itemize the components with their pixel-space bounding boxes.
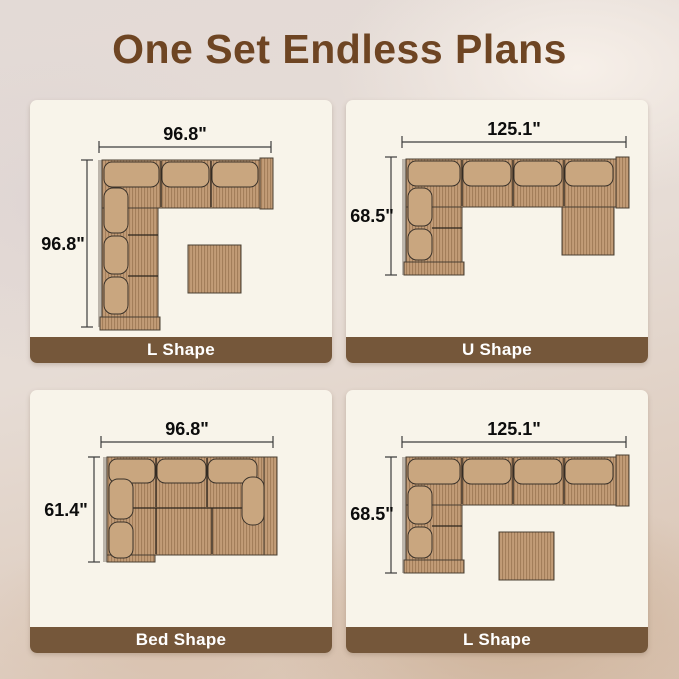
panel-u-shape: 125.1" 68.5": [346, 100, 648, 363]
height-dimension-label: 61.4": [44, 500, 88, 520]
height-dimension: 68.5": [350, 457, 397, 573]
sofa-shadow: [402, 159, 406, 275]
armrest-right: [264, 457, 277, 555]
height-dimension-label: 68.5": [350, 206, 394, 226]
armrest-right: [616, 157, 629, 208]
armrest-bottom: [404, 560, 464, 573]
height-dimension: 61.4": [44, 457, 100, 562]
sofa-top-view: [402, 455, 629, 580]
l-shape-top-diagram: 96.8" 96.8": [30, 100, 332, 337]
panel-label-u-shape: U Shape: [346, 337, 648, 363]
width-dimension-label: 125.1": [487, 419, 541, 439]
width-dimension-label: 96.8": [165, 419, 209, 439]
width-dimension: 96.8": [99, 124, 271, 153]
panel-l-shape-top: 96.8" 96.8": [30, 100, 332, 363]
panel-l-shape-bottom: 125.1" 68.5": [346, 390, 648, 653]
sofa-top-view: [402, 157, 629, 275]
sofa-top-view: [103, 457, 277, 562]
panel-bed-shape: 96.8" 61.4": [30, 390, 332, 653]
plans-grid: 96.8" 96.8": [30, 100, 648, 653]
height-dimension: 68.5": [350, 157, 397, 275]
width-dimension: 125.1": [402, 419, 626, 448]
page-title: One Set Endless Plans: [0, 0, 679, 73]
width-dimension: 125.1": [402, 119, 626, 148]
panel-label-bed-shape: Bed Shape: [30, 627, 332, 653]
sofa-shadow: [103, 457, 107, 562]
width-dimension: 96.8": [101, 419, 273, 448]
panel-label-l-shape-bottom: L Shape: [346, 627, 648, 653]
sofa-shadow: [98, 160, 102, 327]
ottoman: [188, 245, 241, 293]
armrest-right: [260, 158, 273, 209]
height-dimension-label: 68.5": [350, 504, 394, 524]
page-background: { "title": "One Set Endless Plans", "col…: [0, 0, 679, 679]
bed-shape-diagram: 96.8" 61.4": [30, 390, 332, 627]
width-dimension-label: 96.8": [163, 124, 207, 144]
height-dimension: 96.8": [41, 160, 93, 327]
armrest-bottom: [404, 262, 464, 275]
panel-label-l-shape-top: L Shape: [30, 337, 332, 363]
armrest-bottom: [100, 317, 160, 330]
u-shape-diagram: 125.1" 68.5": [346, 100, 648, 337]
width-dimension-label: 125.1": [487, 119, 541, 139]
sofa-top-view: [98, 158, 273, 330]
ottoman: [499, 532, 554, 580]
height-dimension-label: 96.8": [41, 234, 85, 254]
chaise-right: [562, 207, 614, 255]
sofa-shadow: [402, 457, 406, 573]
armrest-right: [616, 455, 629, 506]
l-shape-bottom-diagram: 125.1" 68.5": [346, 390, 648, 627]
